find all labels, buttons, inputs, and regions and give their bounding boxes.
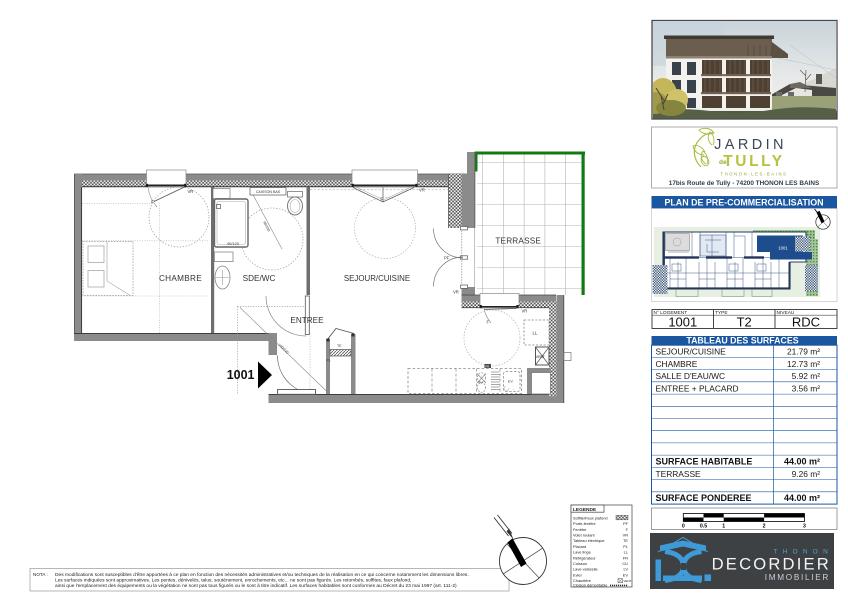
svg-text:1: 1 [722, 524, 725, 530]
svg-text:ENTREE + PLACARD: ENTREE + PLACARD [656, 383, 739, 393]
svg-text:PF: PF [444, 256, 450, 261]
svg-text:SEJOUR/CUISINE: SEJOUR/CUISINE [656, 347, 727, 357]
svg-text:PL: PL [623, 544, 629, 549]
svg-text:Lave linge: Lave linge [573, 550, 591, 555]
svg-text:LL: LL [533, 331, 538, 336]
svg-text:VR: VR [522, 309, 528, 314]
svg-text:VR: VR [453, 290, 459, 295]
svg-text:CHAMBRE: CHAMBRE [159, 274, 202, 283]
svg-text:IMMOBILIER: IMMOBILIER [765, 573, 830, 582]
svg-text:1001: 1001 [778, 246, 788, 251]
svg-text:Cloison démontable: Cloison démontable [573, 583, 607, 588]
svg-text:Soffite/Faux plafond: Soffite/Faux plafond [573, 515, 608, 520]
svg-text:DECORDIER: DECORDIER [712, 555, 831, 574]
svg-text:Des modifications sont suscept: Des modifications sont susceptibles d'êt… [55, 572, 469, 578]
svg-text:0.5: 0.5 [700, 524, 707, 530]
svg-text:CHAMBRE: CHAMBRE [656, 359, 698, 369]
svg-text:12.73 m²: 12.73 m² [787, 359, 820, 369]
svg-text:PLAN DE PRE-COMMERCIALISATION: PLAN DE PRE-COMMERCIALISATION [664, 197, 823, 207]
svg-text:Lave-vaisselle: Lave-vaisselle [573, 567, 598, 572]
svg-text:21.79 m²: 21.79 m² [787, 347, 820, 357]
svg-text:Evier: Evier [573, 572, 583, 577]
svg-text:TE: TE [337, 344, 342, 348]
svg-text:Fenêtre: Fenêtre [573, 527, 586, 532]
svg-text:VR: VR [623, 533, 629, 538]
svg-text:TE: TE [623, 538, 628, 543]
svg-text:F: F [151, 200, 154, 205]
svg-text:VENT: VENT [536, 355, 545, 359]
svg-text:SDE/WC: SDE/WC [243, 274, 276, 283]
svg-text:3: 3 [803, 524, 806, 530]
svg-text:PL: PL [327, 359, 331, 363]
svg-text:CAISSON BAS: CAISSON BAS [256, 190, 281, 194]
svg-text:Tableau électrique: Tableau électrique [573, 538, 605, 543]
svg-text:Porte-fenêtre: Porte-fenêtre [573, 521, 596, 526]
svg-text:9.26 m²: 9.26 m² [792, 469, 821, 479]
svg-text:F: F [487, 320, 490, 325]
svg-text:VENT: VENT [624, 579, 632, 583]
svg-text:TYPE: TYPE [715, 310, 728, 316]
svg-text:44.00 m²: 44.00 m² [784, 457, 820, 467]
svg-text:2: 2 [763, 524, 766, 530]
svg-text:SEJOUR/CUISINE: SEJOUR/CUISINE [344, 274, 410, 283]
svg-text:SURFACE HABITABLE: SURFACE HABITABLE [656, 457, 753, 467]
svg-text:TERRASSE: TERRASSE [656, 469, 702, 479]
svg-text:0: 0 [682, 524, 685, 530]
svg-text:T2: T2 [737, 315, 752, 330]
svg-text:TULLY: TULLY [723, 153, 785, 170]
svg-text:TABLEAU DES SURFACES: TABLEAU DES SURFACES [686, 336, 798, 346]
svg-text:NOTA :: NOTA : [33, 572, 48, 577]
svg-text:90/120: 90/120 [227, 242, 239, 246]
svg-text:Volet roulant: Volet roulant [573, 533, 596, 538]
svg-text:SALLE D'EAU/WC: SALLE D'EAU/WC [656, 371, 726, 381]
svg-text:Les surfaces indiquées sont ap: Les surfaces indiquées sont approximativ… [55, 577, 411, 583]
svg-text:LV: LV [624, 567, 629, 572]
svg-text:Réfrigérateur: Réfrigérateur [573, 555, 596, 560]
svg-text:EV: EV [623, 572, 629, 577]
svg-text:PF: PF [623, 521, 629, 526]
svg-text:CU: CU [478, 381, 483, 385]
svg-text:EV.: EV. [508, 380, 513, 384]
svg-text:3.56 m²: 3.56 m² [792, 383, 821, 393]
svg-text:ainsi que l'emplacement des éq: ainsi que l'emplacement des équipements … [55, 583, 457, 589]
svg-text:1001: 1001 [227, 368, 255, 382]
svg-text:CU: CU [622, 561, 628, 566]
svg-text:17bis Route de Tully - 74200 T: 17bis Route de Tully - 74200 THONON LES … [669, 180, 820, 187]
svg-text:LEGENDE: LEGENDE [573, 507, 597, 513]
svg-text:44.00 m²: 44.00 m² [784, 493, 820, 503]
svg-text:SURFACE PONDEREE: SURFACE PONDEREE [656, 493, 752, 503]
svg-text:5.92 m²: 5.92 m² [792, 371, 821, 381]
svg-text:RDC: RDC [792, 315, 820, 330]
svg-text:TERRASSE: TERRASSE [495, 237, 541, 246]
svg-text:THONON-LES-BAINS: THONON-LES-BAINS [720, 172, 787, 177]
svg-text:→: → [512, 387, 515, 391]
svg-text:Cuisson: Cuisson [573, 561, 587, 566]
svg-text:ENTREE: ENTREE [290, 316, 324, 325]
svg-text:Placard: Placard [573, 544, 586, 549]
svg-text:VR: VR [188, 189, 194, 194]
svg-text:JARDIN: JARDIN [714, 137, 787, 153]
svg-text:FR: FR [623, 555, 628, 560]
svg-text:1001: 1001 [668, 315, 697, 330]
